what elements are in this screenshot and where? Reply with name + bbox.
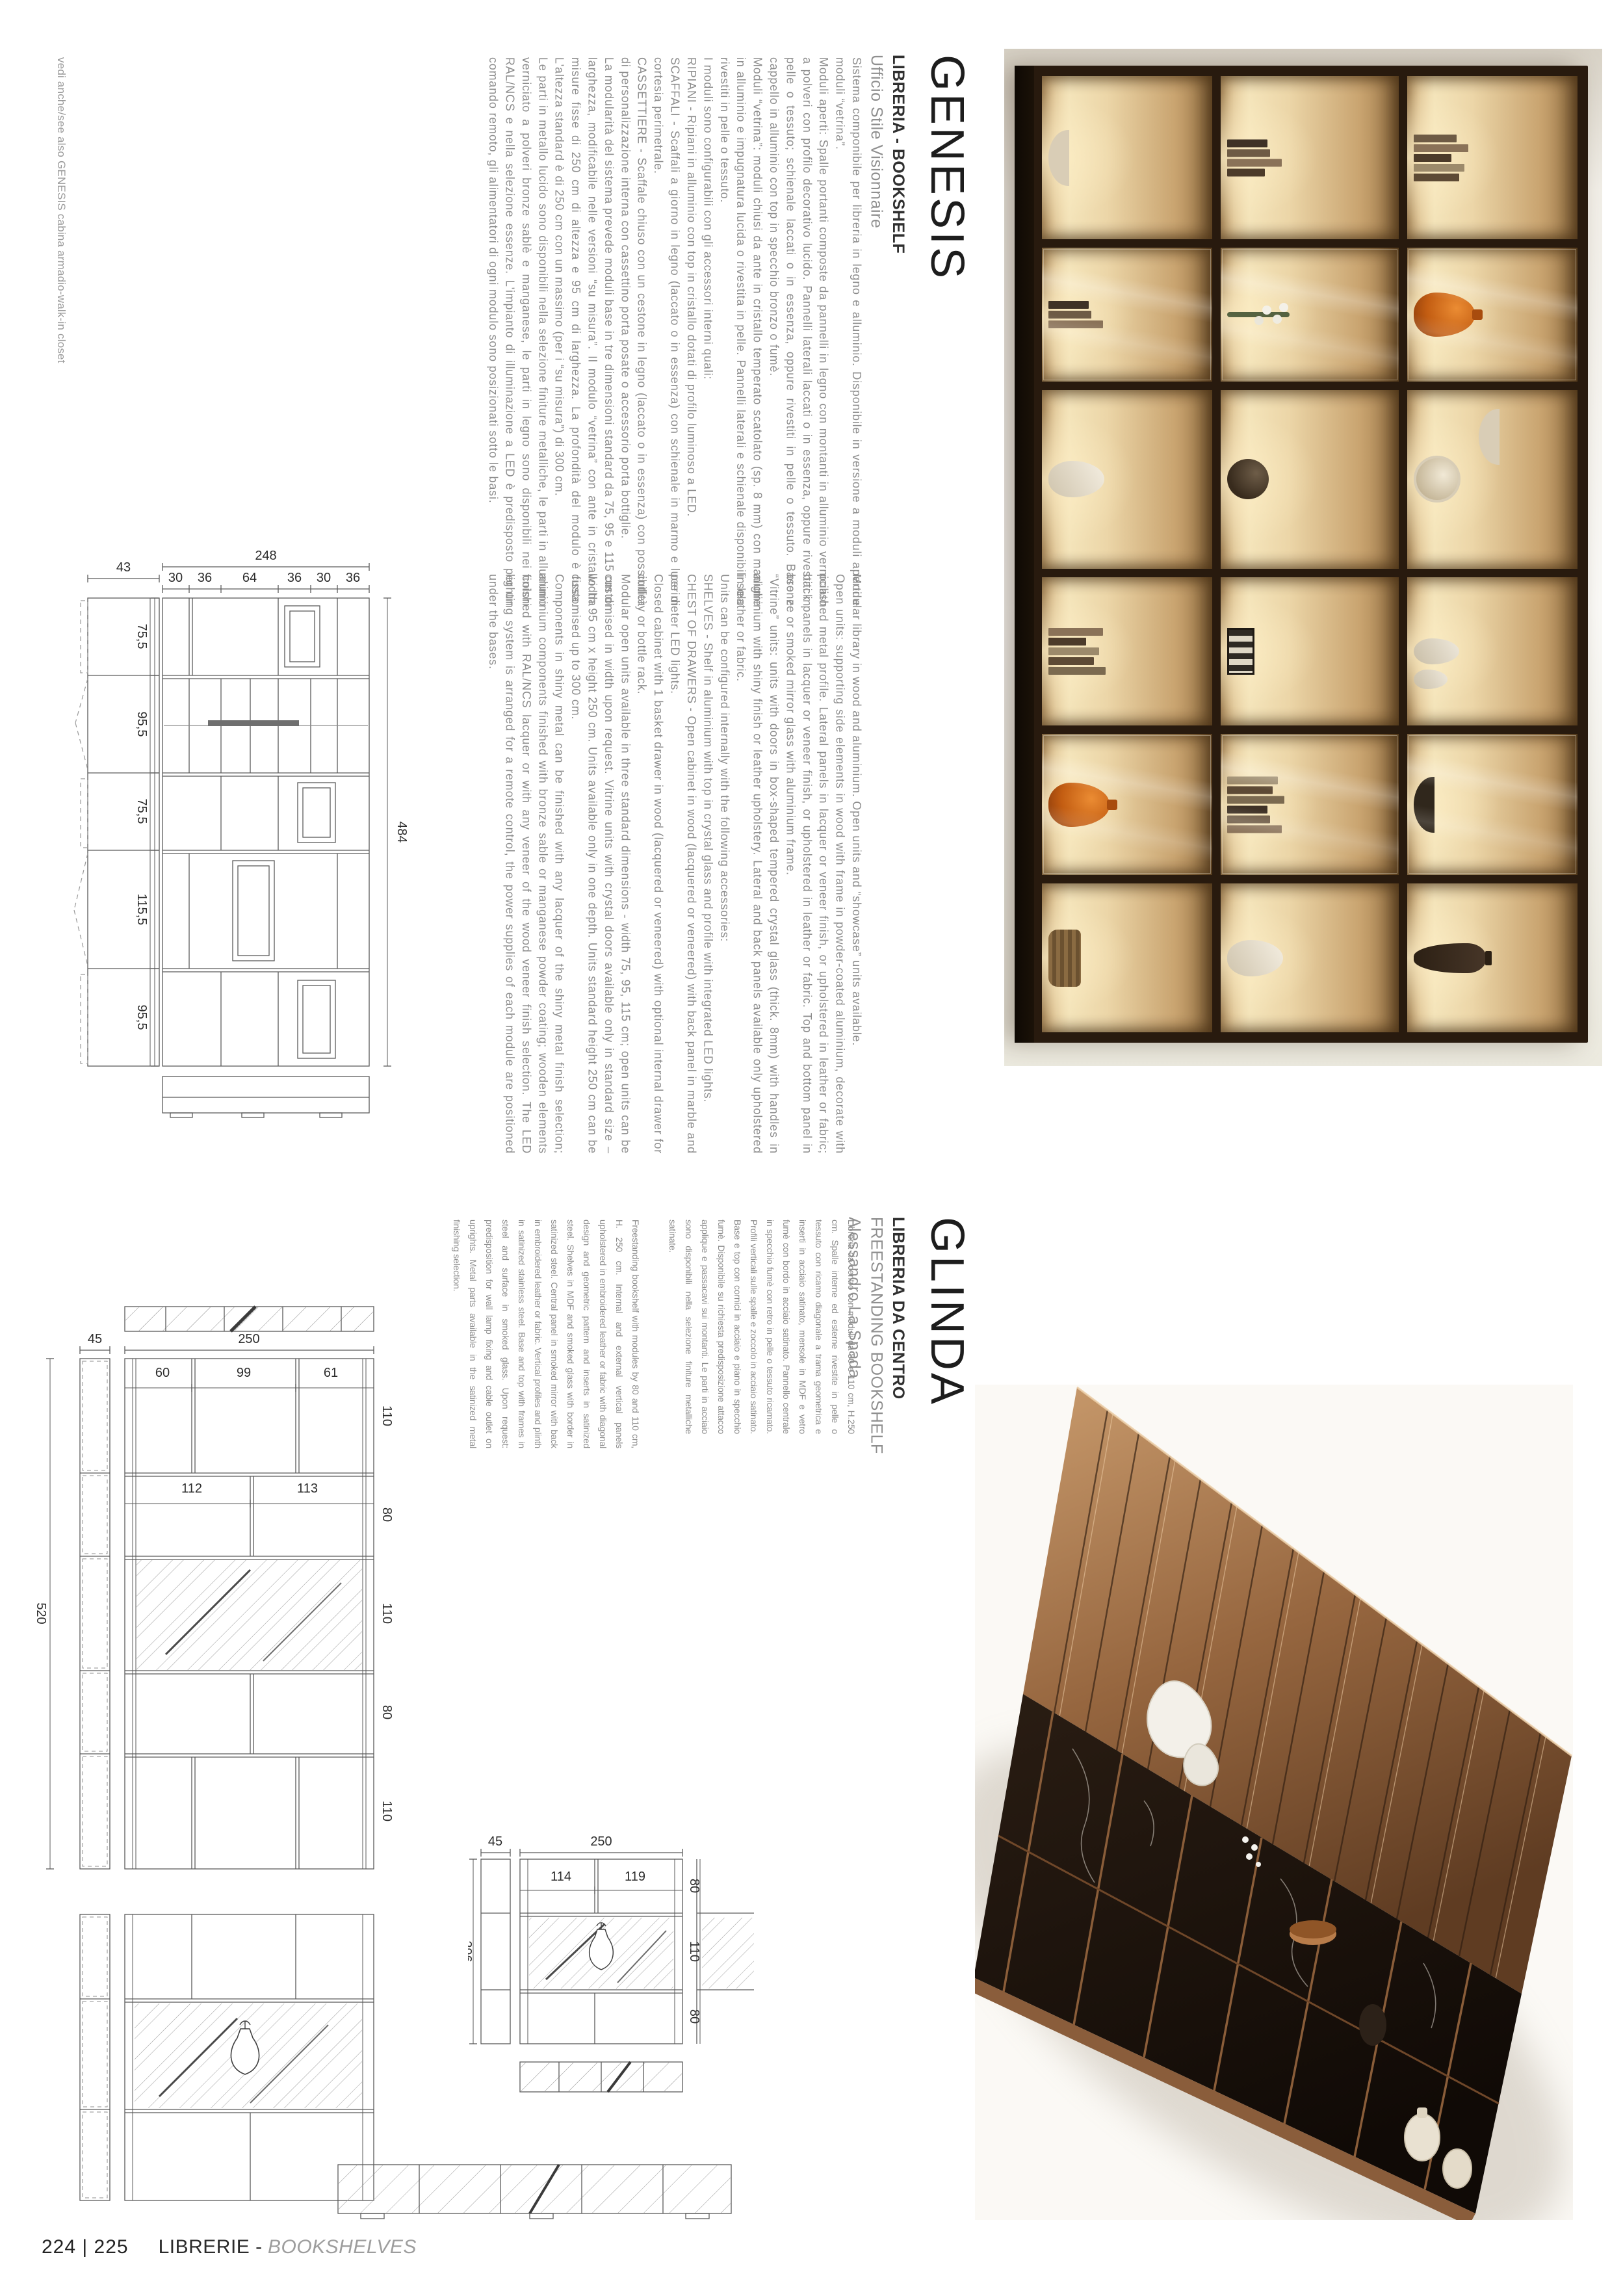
dim-row: 110 xyxy=(379,1405,394,1426)
genesis-photo xyxy=(1004,49,1602,1066)
page-numbers: 224 | 225 xyxy=(42,2236,129,2258)
shelf-compartment xyxy=(1407,248,1578,382)
shelf-compartment xyxy=(1221,577,1399,726)
photo-object-books xyxy=(1227,776,1284,833)
dim-row: 110 xyxy=(379,1603,394,1624)
dim-row: 80 xyxy=(379,1705,394,1719)
photo-object-bowl xyxy=(1479,409,1500,465)
dim-total: 296 xyxy=(468,1940,474,1962)
photo-object-gourd xyxy=(1048,783,1110,827)
glinda-subtitle-en: FREESTANDING BOOKSHELF xyxy=(865,1217,887,1454)
shelf-compartment xyxy=(1042,390,1212,568)
shelf-compartment xyxy=(1407,734,1578,875)
shelf-compartment xyxy=(1221,248,1399,382)
glinda-base-strip-drawing xyxy=(335,2161,738,2226)
dim-col: 36 xyxy=(287,571,302,586)
photo-object-vase-pair xyxy=(1414,638,1459,664)
shelf-compartment xyxy=(1221,883,1399,1032)
dim-col: 112 xyxy=(181,1481,202,1496)
dim-total-height: 248 xyxy=(255,549,276,564)
genesis-text-italian: Sistema componibile per libreria in legn… xyxy=(485,57,864,607)
shelf-compartment xyxy=(1042,734,1212,875)
glinda-title-block: GLINDA LIBRERIA DA CENTRO FREESTANDING B… xyxy=(843,1217,976,1454)
genesis-bookshelf xyxy=(1015,66,1588,1043)
see-also-note: vedi anche/see also GENESIS cabina armad… xyxy=(55,57,68,473)
dim-col: 30 xyxy=(168,571,183,586)
dim-width: 250 xyxy=(590,1834,612,1849)
photo-object-plate xyxy=(1414,456,1461,502)
photo-object-bowl xyxy=(1414,777,1435,833)
glinda-strip-lines xyxy=(335,2161,738,2226)
dim-row: 80 xyxy=(686,2009,701,2024)
genesis-shelf-grid xyxy=(1042,76,1578,1032)
dim-row: 80 xyxy=(379,1507,394,1522)
photo-object-vase-cream xyxy=(1048,461,1104,497)
dim-col: 36 xyxy=(198,571,212,586)
genesis-photo-scene xyxy=(1004,49,1602,1066)
photo-object-jar xyxy=(1227,459,1269,499)
dim-side: 45 xyxy=(488,1834,502,1849)
glinda-photo-scene xyxy=(975,1385,1573,2220)
dim-total-width: 484 xyxy=(394,821,409,842)
photo-object-books xyxy=(1227,139,1282,176)
dim-col: 30 xyxy=(317,571,331,586)
photo-object-gourd xyxy=(1414,293,1475,337)
dim-col: 99 xyxy=(237,1366,251,1381)
dim-total: 520 xyxy=(33,1602,48,1624)
shelf-compartment xyxy=(1221,390,1399,568)
category-english: BOOKSHELVES xyxy=(268,2236,417,2258)
glinda-text-italian: Libreria da centro con moduli da 80 e 11… xyxy=(664,1220,859,1434)
photo-object-orchid xyxy=(1227,312,1290,317)
dim-row: 75,5 xyxy=(134,624,149,649)
catalog-page: vedi anche/see also GENESIS cabina armad… xyxy=(0,0,1623,2296)
dim-row: 95,5 xyxy=(134,712,149,737)
page-footer: 224 | 225 LIBRERIE - BOOKSHELVES xyxy=(42,2236,417,2258)
shelf-compartment xyxy=(1407,883,1578,1032)
shelf-compartment xyxy=(1407,76,1578,239)
shelf-compartment xyxy=(1042,76,1212,239)
dim-width: 250 xyxy=(238,1332,259,1347)
dim-col: 61 xyxy=(324,1366,338,1381)
dim-row: 80 xyxy=(686,1879,701,1893)
shelf-compartment xyxy=(1407,390,1578,568)
shelf-compartment xyxy=(1042,248,1212,382)
genesis-text-english: Modular library in wood and aluminium. O… xyxy=(485,574,864,1154)
genesis-title: GENESIS xyxy=(918,55,976,281)
dim-side-width: 43 xyxy=(116,560,131,575)
shelf-compartment xyxy=(1221,76,1399,239)
dim-side: 45 xyxy=(88,1332,102,1347)
glinda-technical-drawing-lower xyxy=(36,1908,387,2210)
photo-object-books xyxy=(1048,628,1106,675)
photo-object-bowl xyxy=(1048,130,1069,186)
photo-object-box-check xyxy=(1227,628,1254,675)
dim-col: 36 xyxy=(346,571,360,586)
photo-object-basket xyxy=(1048,930,1081,987)
dim-row: 110 xyxy=(686,1941,701,1962)
genesis-studio: Ufficio Stile Visionnaire xyxy=(865,55,887,281)
genesis-title-block: GENESIS LIBRERIA - BOOKSHELF Ufficio Sti… xyxy=(865,55,977,281)
dim-row: 95,5 xyxy=(134,1005,149,1030)
glinda-designer: Alessandro La Spada xyxy=(843,1217,865,1454)
photo-object-books xyxy=(1414,135,1468,181)
dim-col: 64 xyxy=(242,571,257,586)
glinda-title: GLINDA xyxy=(918,1217,976,1454)
glinda-technical-drawing-large: 45 250 520 60 99 61 112 113 110 80 110 8… xyxy=(36,1290,439,1885)
dim-col: 114 xyxy=(551,1870,571,1885)
glinda-subtitle: LIBRERIA DA CENTRO xyxy=(887,1217,909,1454)
photo-object-vase-cream xyxy=(1227,940,1283,976)
photo-object-books xyxy=(1048,301,1103,328)
dim-col: 119 xyxy=(625,1870,645,1885)
shelf-compartment xyxy=(1407,577,1578,726)
genesis-technical-drawing: 43 248 30 36 64 36 30 36 75,5 95,5 75,5 … xyxy=(71,553,513,1144)
category-label: LIBRERIE - BOOKSHELVES xyxy=(159,2236,417,2258)
shelf-compartment xyxy=(1042,577,1212,726)
dim-row: 115,5 xyxy=(134,894,149,926)
shelf-compartment xyxy=(1042,883,1212,1032)
dim-row: 75,5 xyxy=(134,799,149,824)
shelf-compartment xyxy=(1221,734,1399,875)
glinda-drawing-lower-lines xyxy=(36,1908,387,2210)
glinda-photo xyxy=(975,1385,1573,2220)
dim-col: 113 xyxy=(297,1481,318,1496)
dim-col: 60 xyxy=(155,1366,170,1381)
category-italian: LIBRERIE - xyxy=(159,2236,263,2258)
genesis-subtitle: LIBRERIA - BOOKSHELF xyxy=(887,55,909,281)
dim-row: 110 xyxy=(379,1801,394,1821)
photo-object-amph xyxy=(1414,943,1487,973)
glinda-text-english: Freestanding bookshelf with modules by 8… xyxy=(448,1220,643,1448)
